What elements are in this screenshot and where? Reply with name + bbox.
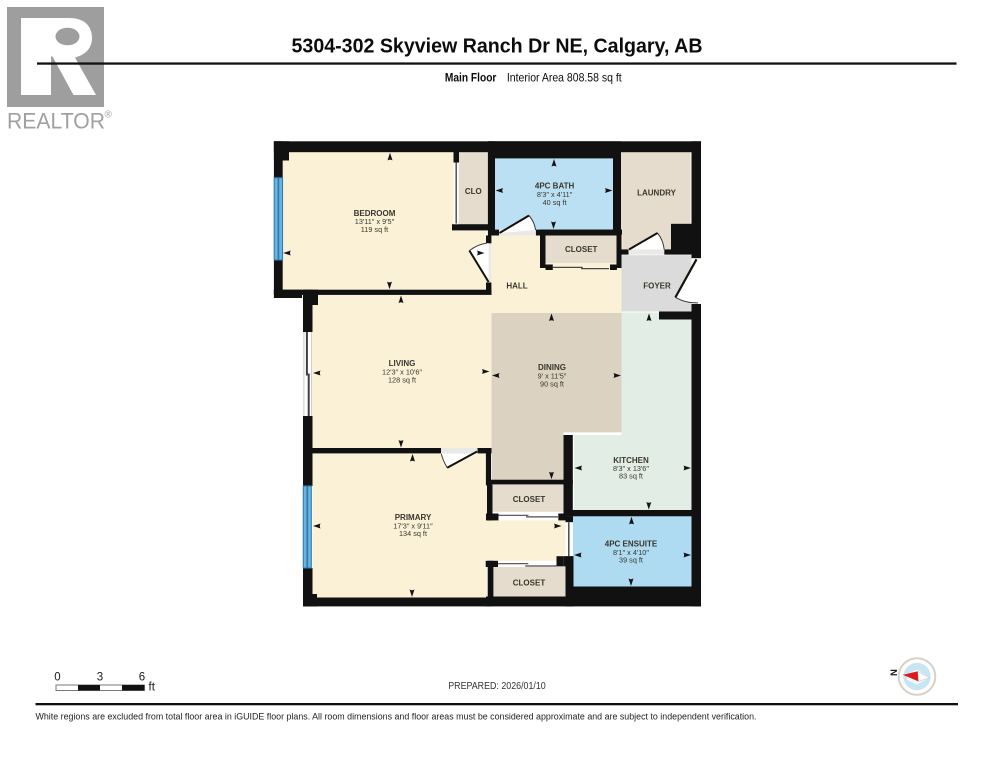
svg-text:FOYER: FOYER: [643, 282, 671, 291]
svg-text:CLOSET: CLOSET: [565, 245, 598, 254]
svg-text:90 sq ft: 90 sq ft: [540, 380, 564, 389]
svg-text:HALL: HALL: [506, 282, 527, 291]
svg-text:134 sq ft: 134 sq ft: [399, 529, 427, 538]
svg-text:Main Floor: Main Floor: [445, 71, 497, 85]
svg-text:Interior Area 808.58 sq ft: Interior Area 808.58 sq ft: [507, 71, 622, 85]
svg-text:REALTOR: REALTOR: [7, 109, 105, 134]
svg-text:LAUNDRY: LAUNDRY: [637, 188, 676, 197]
svg-text:83 sq ft: 83 sq ft: [619, 472, 643, 481]
svg-text:40 sq ft: 40 sq ft: [543, 198, 567, 207]
svg-text:CLO: CLO: [465, 187, 482, 196]
svg-text:PREPARED: 2026/01/10: PREPARED: 2026/01/10: [448, 680, 546, 692]
svg-text:ft: ft: [149, 682, 156, 694]
svg-text:119 sq ft: 119 sq ft: [361, 225, 388, 234]
svg-text:0: 0: [54, 672, 60, 684]
svg-text:5304-302 Skyview Ranch Dr NE,: 5304-302 Skyview Ranch Dr NE, Calgary, A…: [292, 35, 703, 57]
svg-text:3: 3: [97, 672, 103, 684]
svg-text:CLOSET: CLOSET: [513, 579, 546, 588]
svg-text:White regions are excluded fro: White regions are excluded from total fl…: [36, 712, 757, 722]
svg-text:CLOSET: CLOSET: [513, 495, 546, 504]
svg-text:39 sq ft: 39 sq ft: [619, 556, 643, 565]
svg-text:6: 6: [139, 672, 145, 684]
svg-text:N: N: [888, 669, 899, 676]
svg-text:128 sq ft: 128 sq ft: [388, 376, 416, 385]
svg-text:®: ®: [105, 110, 113, 121]
